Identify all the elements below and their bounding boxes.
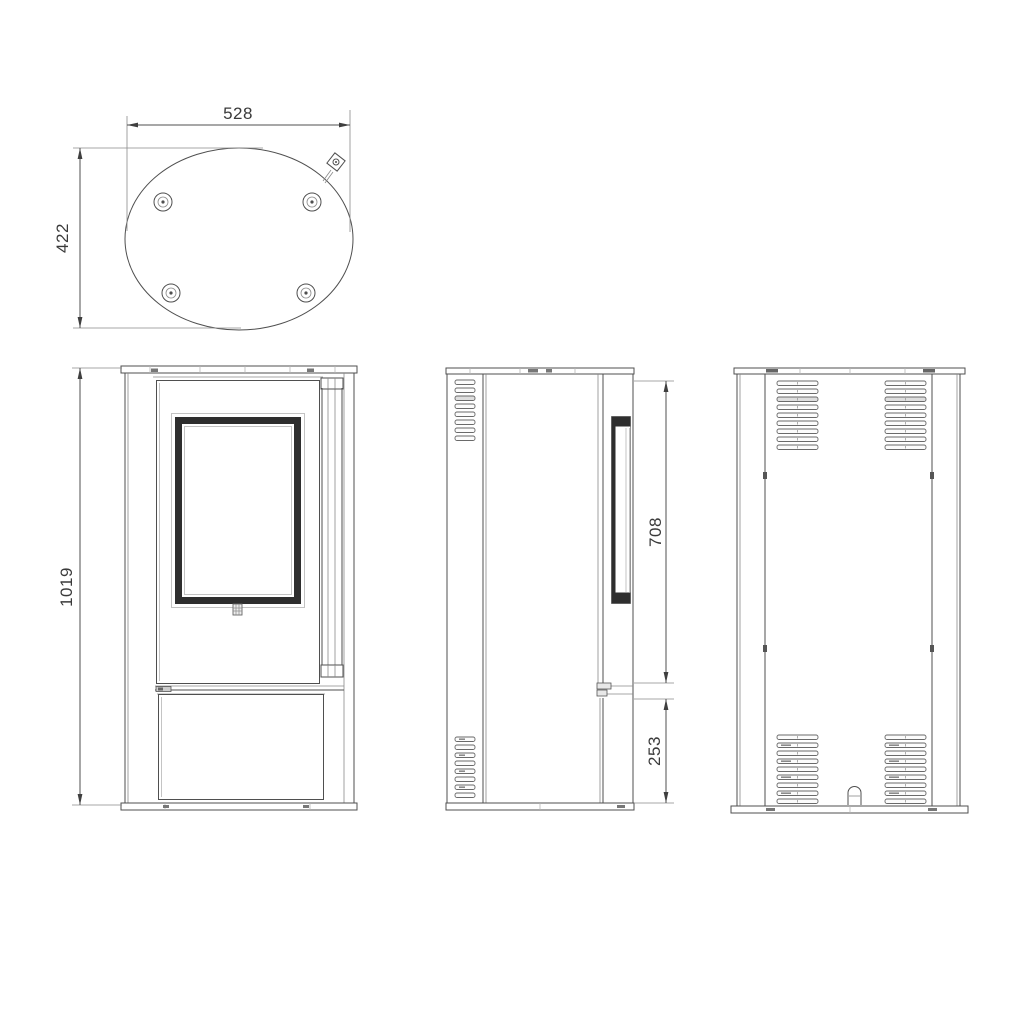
handle-bottom-cap	[321, 665, 343, 677]
brand-logo	[233, 604, 242, 615]
top-view: 528 422	[53, 104, 353, 330]
width-dimension-label: 528	[223, 104, 253, 123]
leveling-foot	[162, 284, 180, 302]
leveling-foot	[154, 193, 172, 211]
base-plate-outline	[125, 148, 353, 330]
window-glass	[182, 424, 294, 597]
front-divider	[155, 686, 344, 694]
back-top-plate	[734, 368, 965, 374]
side-top-vents	[455, 380, 475, 441]
back-vent-grid-bottom-right	[885, 735, 926, 804]
depth-dimension-label: 422	[53, 223, 72, 253]
front-floor-plate	[121, 803, 357, 810]
side-divider	[597, 683, 633, 803]
back-view	[731, 368, 968, 813]
upper-section-dimension: 708	[634, 381, 674, 683]
back-floor-plate	[731, 806, 968, 813]
lower-section-dimension-label: 253	[645, 736, 664, 766]
back-vent-grid-top-right	[885, 381, 926, 450]
leveling-foot	[297, 284, 315, 302]
handle-top-cap	[321, 378, 343, 389]
upper-section-dimension-label: 708	[646, 517, 665, 547]
top-plate	[121, 366, 357, 373]
side-bottom-vents	[455, 737, 475, 798]
width-dimension: 528	[127, 104, 350, 232]
door-window	[172, 414, 305, 608]
front-view: 1019	[57, 366, 357, 810]
back-left-strip	[737, 374, 767, 806]
drawing-canvas: 528 422	[0, 0, 1030, 1030]
control-lever	[323, 153, 345, 183]
side-top-plate	[446, 368, 634, 374]
side-view: 708 253	[446, 368, 674, 810]
base-compartment-panel	[159, 695, 324, 800]
handle-rail	[321, 378, 343, 677]
side-floor-plate	[446, 803, 634, 810]
height-dimension: 1019	[57, 368, 122, 805]
back-right-strip	[930, 374, 960, 806]
lower-section-dimension: 253	[634, 699, 674, 803]
back-vent-grid-top-left	[777, 381, 818, 450]
cable-grommet	[848, 787, 861, 805]
side-window-edge	[612, 417, 631, 604]
back-vent-grid-bottom-left	[777, 735, 818, 804]
height-dimension-label: 1019	[57, 567, 76, 607]
leveling-foot	[303, 193, 321, 211]
stove-dimension-drawing: 528 422	[0, 0, 1030, 1030]
